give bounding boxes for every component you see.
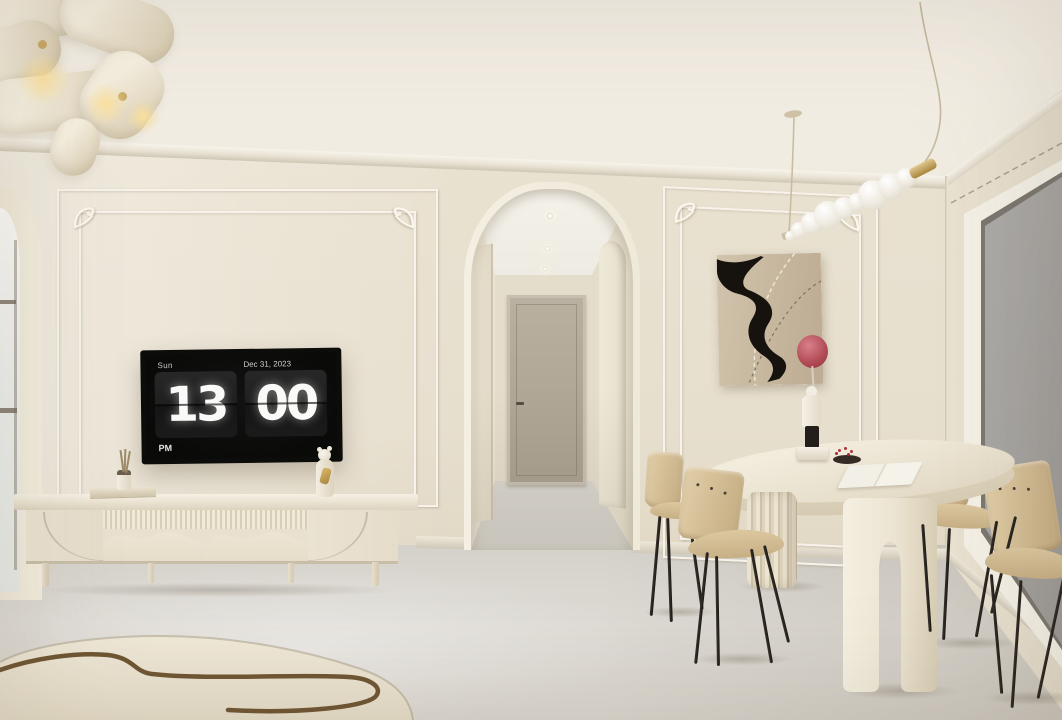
red-berries [838, 449, 841, 452]
chandelier-glow [16, 52, 70, 106]
red-balloon [797, 335, 828, 368]
console-door [308, 510, 398, 563]
console-fluted-band [102, 510, 310, 529]
chair-screws [696, 483, 699, 486]
arched-window [0, 208, 20, 592]
console-leg [42, 563, 49, 587]
chandelier [0, 0, 200, 190]
balloon-figurine [802, 395, 821, 427]
tv-console-top [14, 494, 418, 510]
hallway-arch-shade [471, 189, 633, 550]
chandelier-glow [84, 82, 128, 126]
shadow [688, 652, 798, 666]
living-room-render: Sun Dec 31, 2023 13 00 PM [0, 0, 1062, 720]
chandelier-joint [38, 40, 47, 49]
area-rug [0, 626, 420, 720]
flip-clock-day: Sun [157, 361, 173, 370]
baseboard [416, 536, 468, 549]
console-leg [148, 563, 154, 583]
reed-diffuser [117, 470, 131, 490]
open-book [837, 462, 922, 489]
molding-corner-ornament-icon [390, 204, 416, 230]
flip-clock-meridiem: PM [159, 443, 173, 453]
hallway [471, 189, 633, 550]
tv-screen: Sun Dec 31, 2023 13 00 PM [145, 353, 337, 460]
console-leg [288, 563, 294, 583]
console-door [26, 510, 103, 563]
tv: Sun Dec 31, 2023 13 00 PM [140, 348, 343, 465]
console-door-arc [43, 512, 103, 561]
shadow [24, 582, 414, 598]
chandelier-glow [126, 100, 160, 134]
flip-clock-date: Dec 31, 2023 [243, 359, 291, 369]
molding-corner-ornament-icon [72, 204, 98, 230]
flip-clock-hour-card: 13 [155, 371, 238, 438]
wall-seam-line [947, 85, 1062, 710]
dining-chair-back [644, 451, 684, 509]
console-door-arc [308, 512, 368, 561]
molding-corner-ornament-icon [673, 198, 699, 225]
window-frame-edge [14, 240, 17, 570]
fruit-bowl [833, 455, 861, 464]
console-shadow-line [26, 561, 398, 564]
figurine-base [797, 447, 828, 460]
console-leg [372, 562, 379, 586]
glass-door [947, 85, 1062, 710]
balloon-figurine-legs [805, 426, 819, 448]
flip-clock-minute-card: 00 [245, 370, 328, 437]
